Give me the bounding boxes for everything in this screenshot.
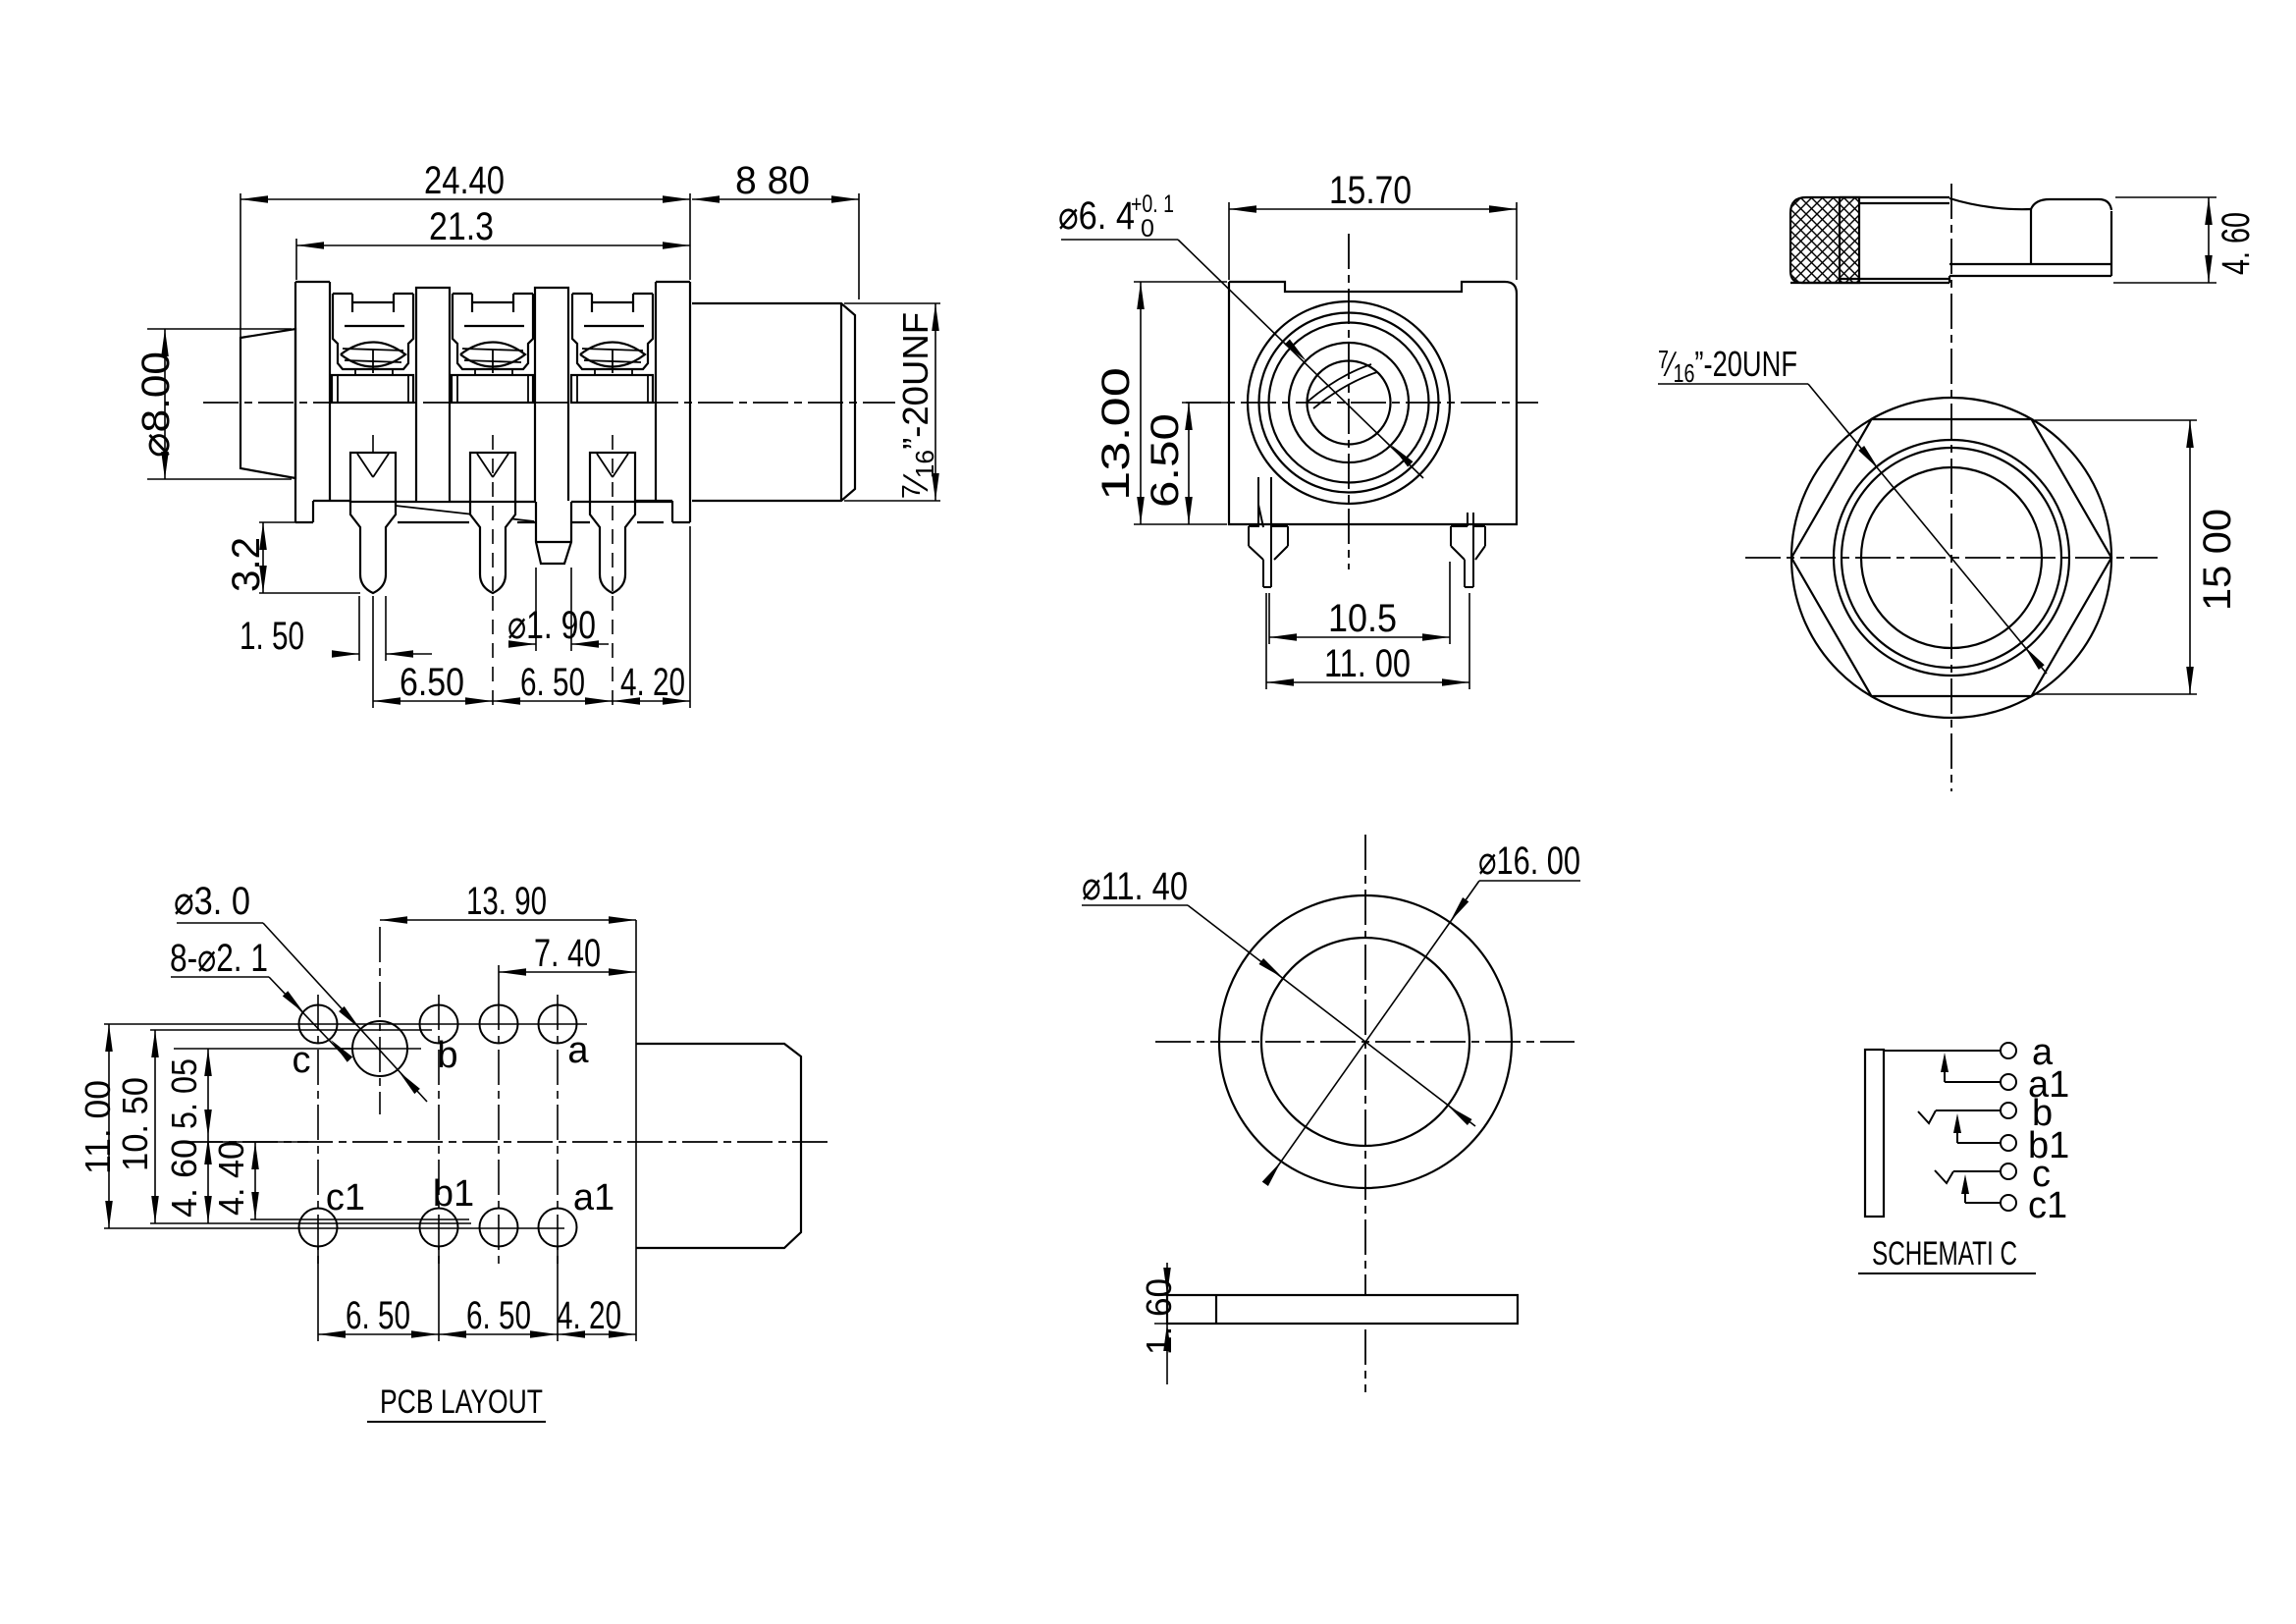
svg-text:13. 90: 13. 90 (466, 880, 547, 923)
svg-text:10. 50: 10. 50 (115, 1077, 155, 1171)
svg-text:6. 50: 6. 50 (520, 661, 585, 704)
svg-text:21.3: 21.3 (429, 205, 494, 248)
svg-text:⌀16. 00: ⌀16. 00 (1478, 839, 1580, 883)
svg-text:6.50: 6.50 (1144, 413, 1187, 508)
svg-text:⌀6. 4: ⌀6. 4 (1058, 194, 1135, 238)
svg-text:⌀3. 0: ⌀3. 0 (174, 880, 250, 923)
svg-text:7. 40: 7. 40 (534, 932, 601, 975)
svg-text:6. 50: 6. 50 (466, 1294, 531, 1337)
svg-text:6.50: 6.50 (400, 661, 464, 704)
svg-text:4. 60: 4. 60 (164, 1139, 204, 1218)
svg-text:24.40: 24.40 (424, 159, 505, 202)
svg-text:8-⌀2. 1: 8-⌀2. 1 (170, 937, 268, 980)
svg-text:1. 60: 1. 60 (1139, 1278, 1179, 1355)
svg-text:c1: c1 (2028, 1185, 2067, 1226)
svg-text:11. 00: 11. 00 (1324, 642, 1411, 685)
svg-text:⌀8.00: ⌀8.00 (134, 352, 178, 458)
svg-text:+0. 1: +0. 1 (1131, 190, 1174, 218)
svg-text:5. 05: 5. 05 (164, 1058, 204, 1129)
svg-text:c: c (293, 1040, 311, 1081)
svg-text:0: 0 (1141, 215, 1154, 243)
svg-text:⌀1. 90: ⌀1. 90 (507, 604, 596, 647)
svg-text:SCHEMATI C: SCHEMATI C (1872, 1235, 2017, 1272)
svg-text:1. 50: 1. 50 (240, 615, 304, 658)
svg-text:10.5: 10.5 (1328, 597, 1397, 640)
svg-text:15 00: 15 00 (2196, 509, 2239, 611)
svg-text:⌀11. 40: ⌀11. 40 (1082, 865, 1188, 908)
svg-text:4. 20: 4. 20 (557, 1294, 621, 1337)
svg-text:c1: c1 (326, 1177, 365, 1218)
svg-text:11. 00: 11. 00 (78, 1080, 118, 1174)
svg-text:15.70: 15.70 (1329, 169, 1412, 212)
svg-text:4. 60: 4. 60 (2215, 212, 2258, 275)
svg-text:PCB LAYOUT: PCB LAYOUT (380, 1383, 543, 1421)
svg-text:6. 50: 6. 50 (346, 1294, 410, 1337)
svg-text:13.00: 13.00 (1095, 367, 1138, 501)
svg-text:4. 20: 4. 20 (620, 661, 685, 704)
svg-text:b: b (437, 1035, 457, 1076)
svg-text:4. 40: 4. 40 (211, 1141, 251, 1216)
svg-text:8 80: 8 80 (735, 159, 810, 202)
svg-text:a1: a1 (573, 1177, 614, 1218)
svg-text:3.2: 3.2 (225, 537, 268, 592)
svg-text:b1: b1 (433, 1173, 474, 1215)
svg-text:a: a (567, 1030, 589, 1071)
